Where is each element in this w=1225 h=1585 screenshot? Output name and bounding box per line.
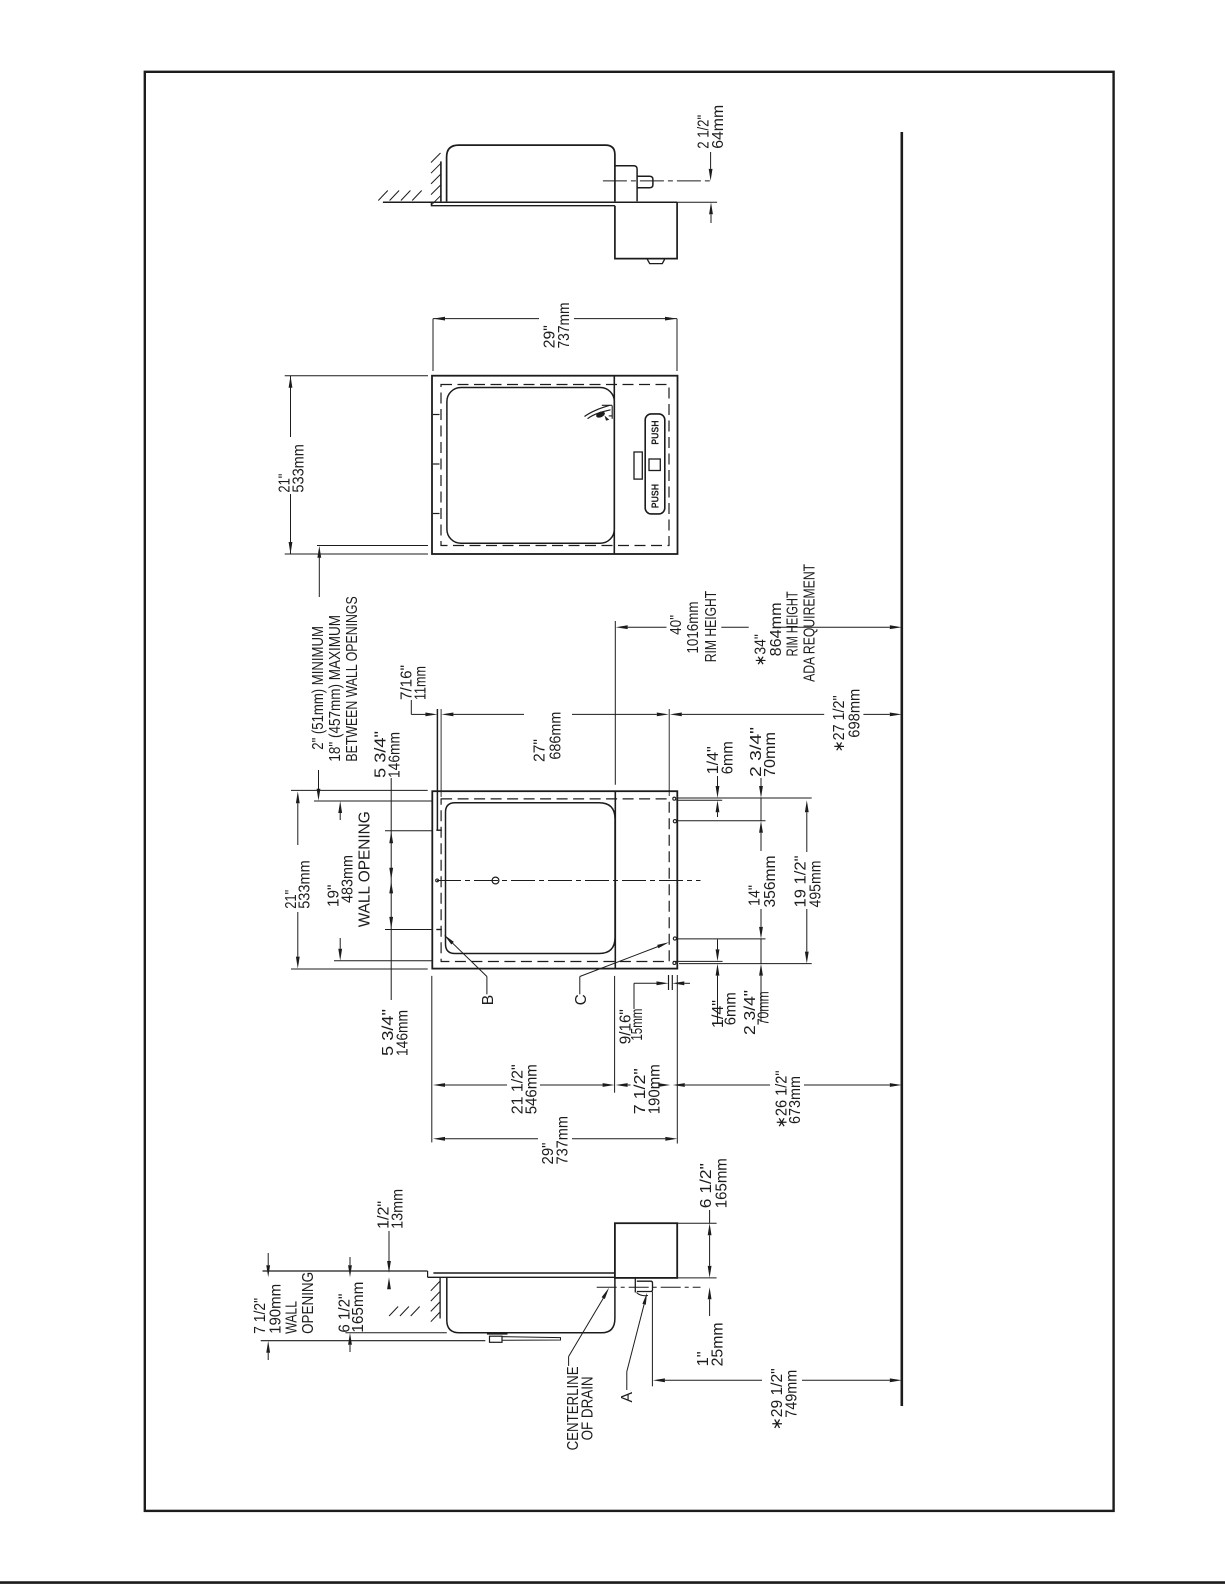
svg-text:483mm: 483mm (340, 855, 357, 903)
svg-text:190mm: 190mm (268, 1284, 285, 1334)
svg-text:6mm: 6mm (720, 741, 737, 774)
svg-text:WALL OPENING: WALL OPENING (357, 811, 374, 927)
svg-text:686mm: 686mm (548, 712, 565, 760)
svg-text:64mm: 64mm (710, 105, 727, 149)
svg-text:B: B (480, 995, 497, 1006)
svg-text:OPENING: OPENING (300, 1272, 317, 1334)
svg-text:OF DRAIN: OF DRAIN (580, 1376, 597, 1440)
svg-text:C: C (573, 994, 590, 1005)
svg-text:∗27 1/2": ∗27 1/2" (831, 695, 848, 752)
svg-text:737mm: 737mm (554, 1116, 571, 1165)
svg-text:BETWEEN WALL OPENINGS: BETWEEN WALL OPENINGS (344, 596, 361, 761)
svg-text:864mm: 864mm (768, 602, 785, 656)
svg-text:RIM HEIGHT: RIM HEIGHT (785, 591, 802, 656)
svg-text:18" (457mm) MAXIMUM: 18" (457mm) MAXIMUM (327, 615, 344, 762)
svg-text:PUSH: PUSH (651, 484, 662, 508)
svg-text:11mm: 11mm (413, 666, 430, 700)
svg-text:2" (51mm) MINIMUM: 2" (51mm) MINIMUM (310, 626, 327, 750)
svg-text:RIM HEIGHT: RIM HEIGHT (703, 590, 720, 662)
svg-text:533mm: 533mm (290, 444, 307, 493)
svg-text:1016mm: 1016mm (685, 602, 702, 654)
svg-text:146mm: 146mm (394, 1010, 411, 1056)
svg-text:533mm: 533mm (297, 860, 314, 909)
svg-text:13mm: 13mm (390, 1189, 407, 1229)
svg-text:673mm: 673mm (787, 1076, 804, 1124)
svg-text:165mm: 165mm (350, 1282, 367, 1333)
svg-text:PUSH: PUSH (651, 421, 662, 445)
svg-text:749mm: 749mm (783, 1370, 800, 1418)
svg-text:WALL: WALL (283, 1301, 300, 1334)
svg-text:737mm: 737mm (556, 303, 573, 349)
svg-text:40": 40" (668, 615, 685, 635)
svg-text:546mm: 546mm (524, 1064, 541, 1114)
svg-text:25mm: 25mm (710, 1322, 727, 1366)
svg-text:∗34": ∗34" (752, 634, 769, 666)
svg-text:27": 27" (532, 739, 549, 762)
svg-text:165mm: 165mm (713, 1158, 730, 1208)
svg-text:495mm: 495mm (808, 861, 825, 908)
svg-text:356mm: 356mm (762, 856, 779, 908)
svg-text:698mm: 698mm (846, 689, 863, 738)
svg-text:6mm: 6mm (723, 992, 740, 1025)
svg-text:146mm: 146mm (387, 732, 404, 778)
svg-text:190mm: 190mm (647, 1064, 664, 1114)
svg-text:ADA REQUIREMENT: ADA REQUIREMENT (801, 563, 818, 681)
svg-text:70mm: 70mm (762, 732, 779, 777)
svg-text:A: A (619, 1391, 636, 1402)
svg-text:15mm: 15mm (629, 1009, 646, 1041)
svg-text:70mm: 70mm (755, 991, 772, 1025)
